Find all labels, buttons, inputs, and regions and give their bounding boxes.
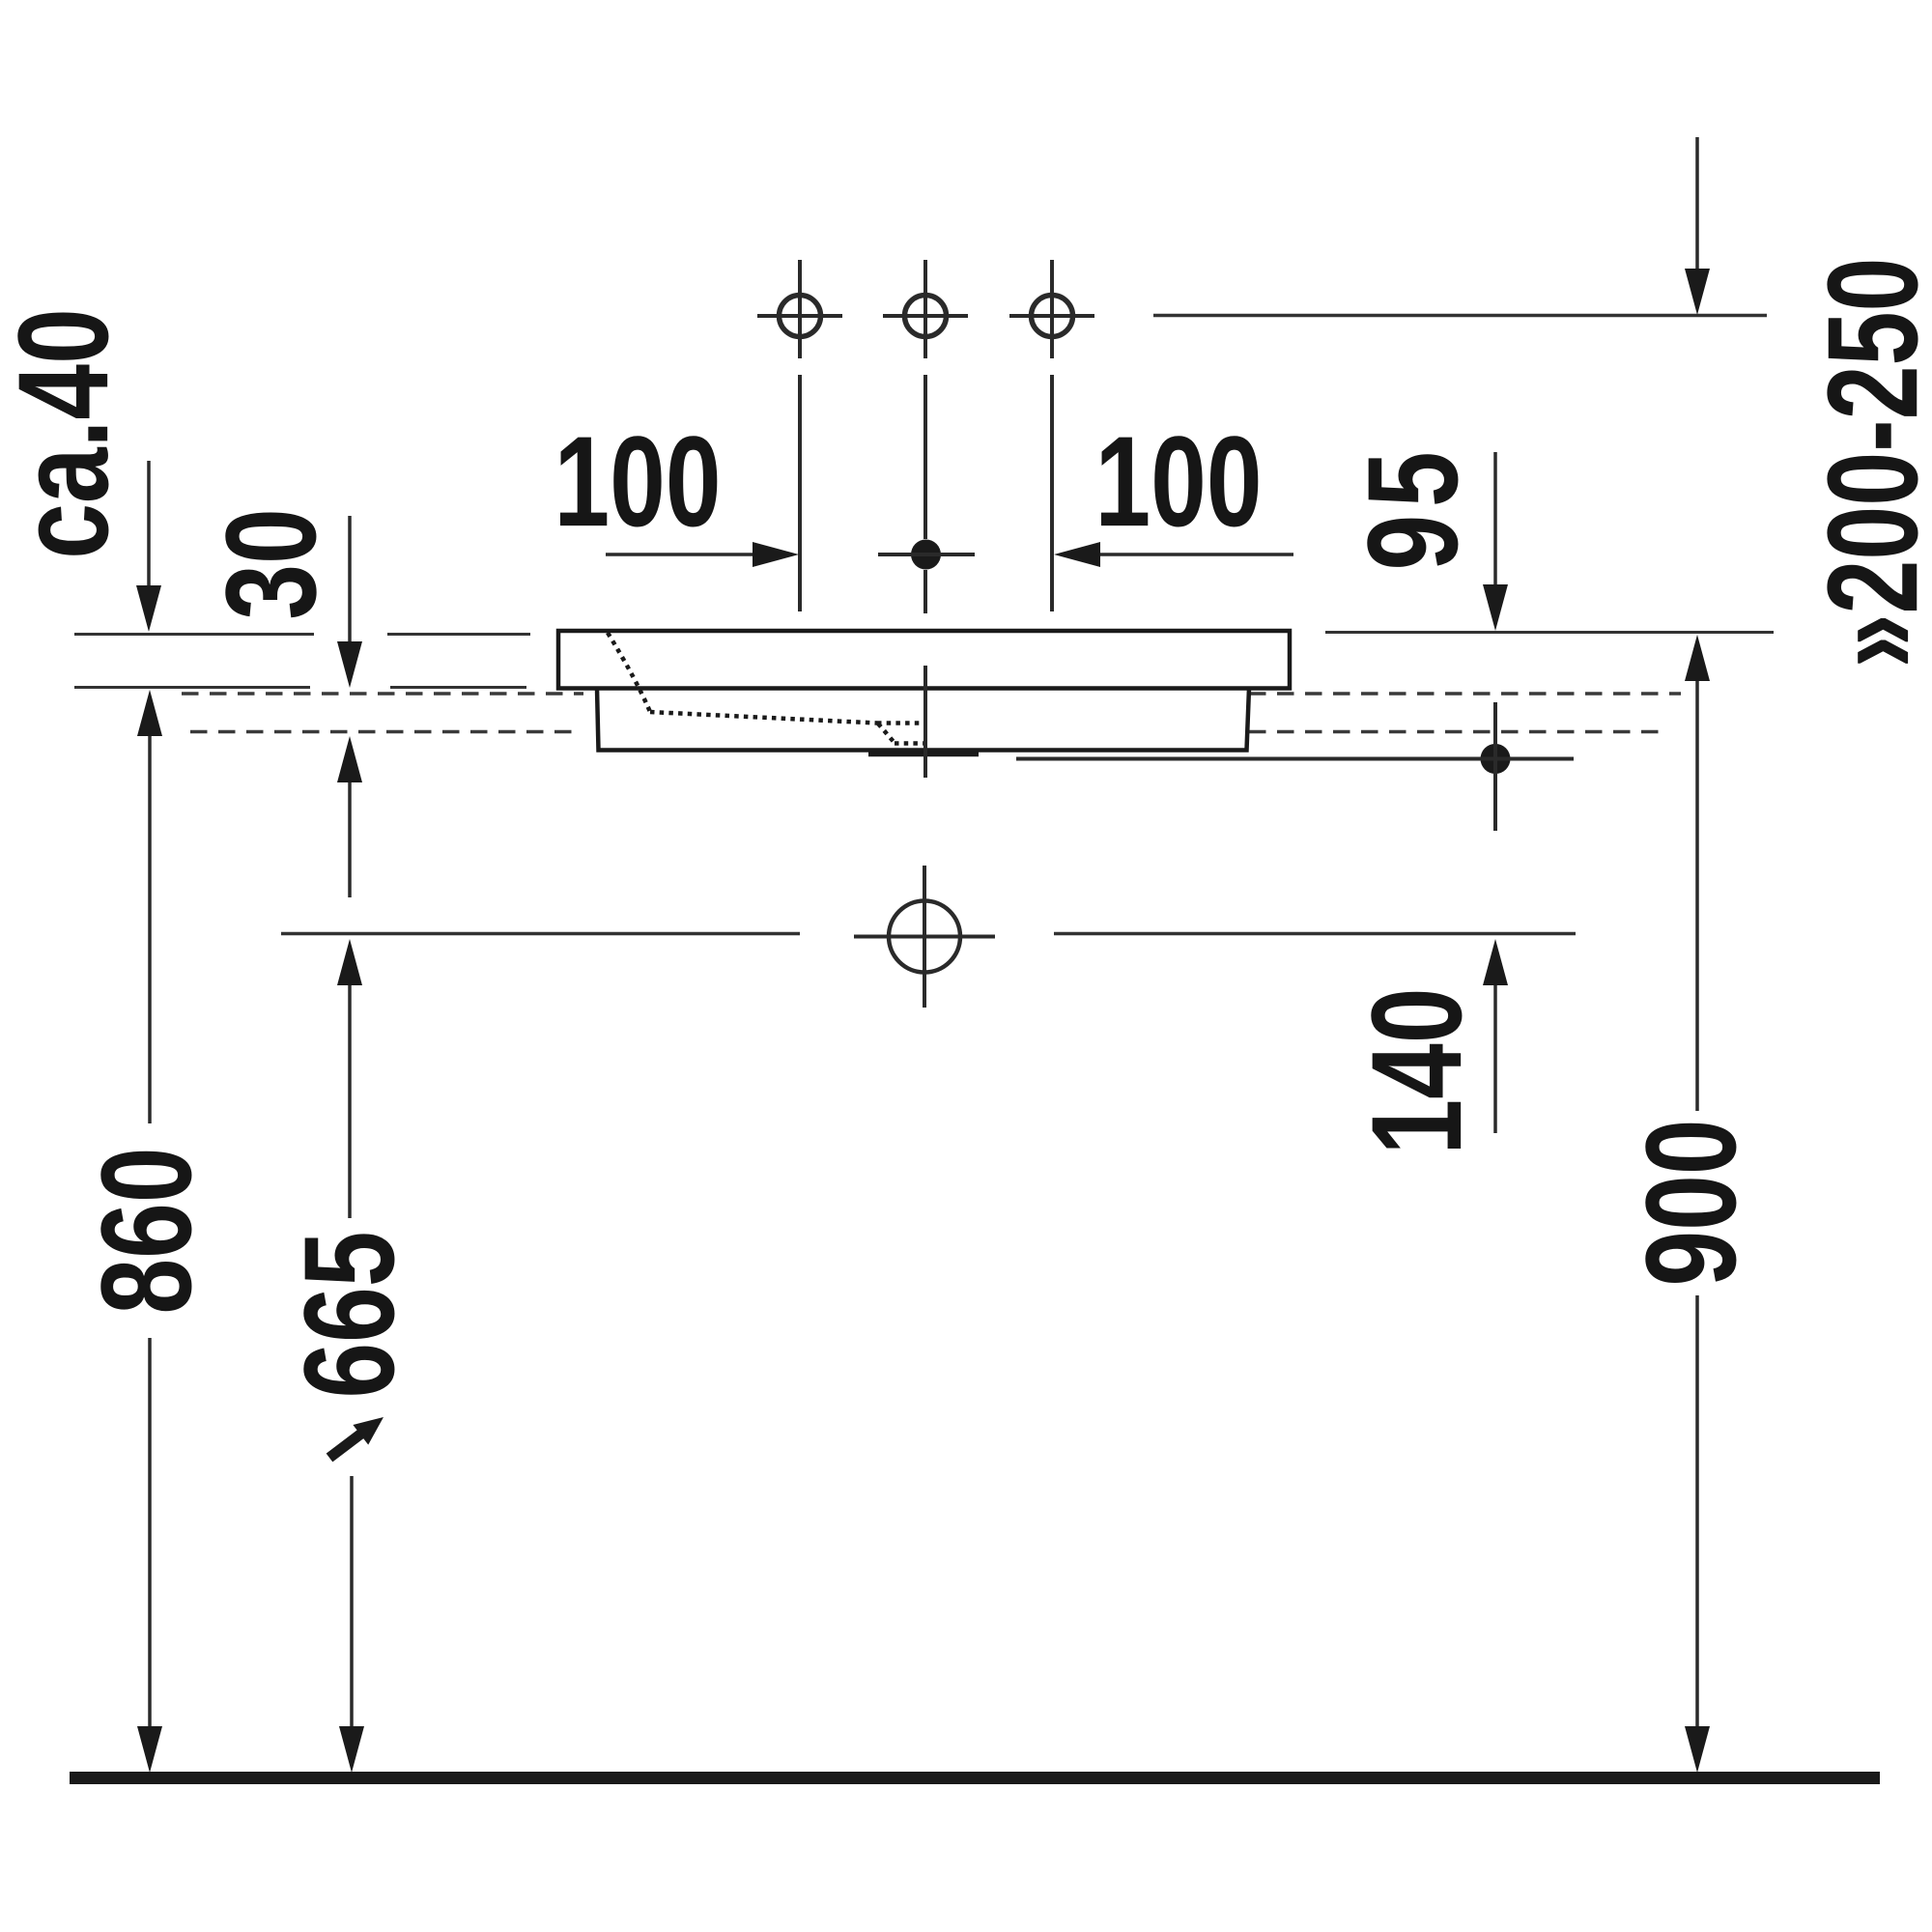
svg-text:100: 100	[1094, 411, 1262, 554]
svg-text:30: 30	[200, 508, 343, 619]
svg-text:665: 665	[278, 1231, 421, 1398]
svg-text:95: 95	[1342, 444, 1485, 571]
svg-text:860: 860	[75, 1147, 218, 1314]
svg-text:100: 100	[554, 411, 721, 554]
svg-text:140: 140	[1346, 987, 1489, 1154]
svg-text:900: 900	[1620, 1119, 1763, 1286]
svg-text:ca.40: ca.40	[0, 308, 135, 559]
svg-text:»200-250: »200-250	[1801, 258, 1932, 668]
